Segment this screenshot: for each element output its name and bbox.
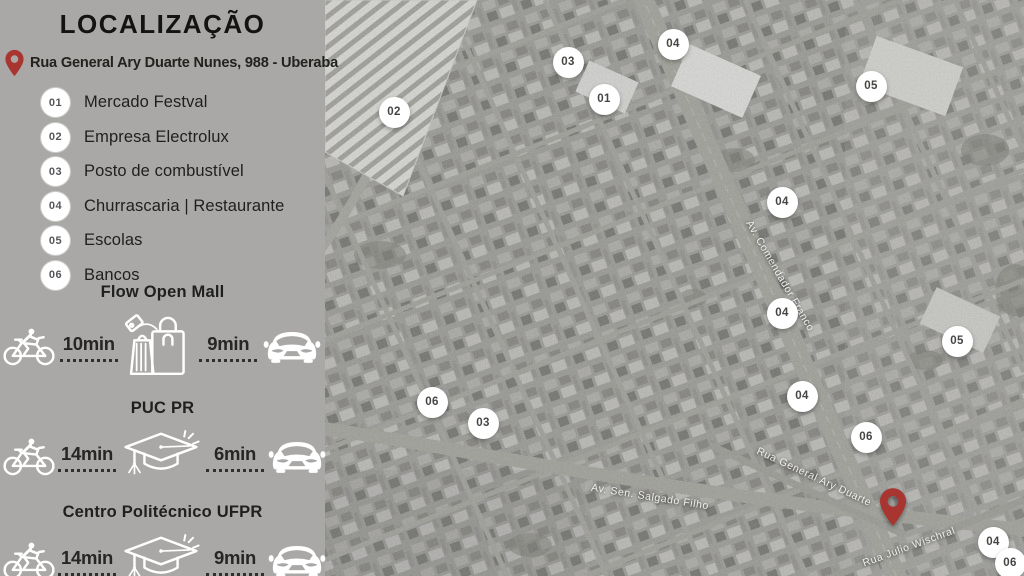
map-marker-number: 03 xyxy=(561,56,575,68)
legend-list: 01 Mercado Festval 02 Empresa Electrolux… xyxy=(41,88,325,290)
destinations-list: Flow Open Mall 10min xyxy=(0,283,325,576)
legend-item: 01 Mercado Festval xyxy=(41,88,325,117)
graduation-cap-icon xyxy=(119,429,203,485)
destination-section: Flow Open Mall 10min xyxy=(0,283,325,392)
car-time: 9min xyxy=(214,547,256,569)
map-marker[interactable]: 06 xyxy=(417,387,448,418)
map-marker[interactable]: 05 xyxy=(856,71,887,102)
legend-item: 03 Posto de combustível xyxy=(41,157,325,186)
location-pin-icon xyxy=(4,49,25,77)
sidebar: LOCALIZAÇÃO Rua General Ary Duarte Nunes… xyxy=(0,0,325,576)
car-time-block: 9min xyxy=(203,547,267,576)
bicycle-icon xyxy=(3,435,55,479)
map-marker[interactable]: 03 xyxy=(468,408,499,439)
map-marker-number: 05 xyxy=(950,335,964,347)
map-marker-number: 04 xyxy=(986,536,1000,548)
map-marker-number: 04 xyxy=(666,38,680,50)
map-marker-number: 04 xyxy=(775,307,789,319)
dotted-line xyxy=(206,469,264,472)
legend-number-badge: 01 xyxy=(41,88,70,117)
legend-number-badge: 04 xyxy=(41,192,70,221)
bicycle-icon xyxy=(3,325,55,369)
satellite-map-image xyxy=(325,0,1024,576)
bike-time: 14min xyxy=(61,547,113,569)
bike-time-block: 10min xyxy=(57,333,121,362)
destination-section: PUC PR 14min xyxy=(0,399,325,496)
map-marker-number: 04 xyxy=(775,196,789,208)
car-time-block: 9min xyxy=(196,333,260,362)
legend-label: Churrascaria | Restaurante xyxy=(84,197,284,216)
car-time-block: 6min xyxy=(203,443,267,472)
address-text: Rua General Ary Duarte Nunes, 988 - Uber… xyxy=(30,55,338,71)
dotted-line xyxy=(58,573,116,576)
map-marker[interactable]: 06 xyxy=(995,548,1024,576)
map-marker-number: 06 xyxy=(425,396,439,408)
map: 0203010405040405040606030406Av. Comendad… xyxy=(325,0,1024,576)
graduation-cap-icon xyxy=(119,533,203,576)
dotted-line xyxy=(206,573,264,576)
legend-number-badge: 05 xyxy=(41,226,70,255)
map-marker[interactable]: 04 xyxy=(787,381,818,412)
bicycle-icon xyxy=(3,539,55,576)
legend-label: Posto de combustível xyxy=(84,162,244,181)
map-marker-number: 01 xyxy=(597,93,611,105)
car-time: 9min xyxy=(207,333,249,355)
legend-label: Escolas xyxy=(84,231,142,250)
car-icon xyxy=(267,540,327,576)
legend-item: 02 Empresa Electrolux xyxy=(41,123,325,152)
map-marker[interactable]: 04 xyxy=(767,298,798,329)
map-marker[interactable]: 01 xyxy=(589,84,620,115)
map-marker[interactable]: 03 xyxy=(553,47,584,78)
legend-item: 05 Escolas xyxy=(41,226,325,255)
destination-row: 14min xyxy=(0,522,325,576)
destination-row: 10min xyxy=(0,302,325,392)
bike-time-block: 14min xyxy=(55,443,119,472)
car-icon xyxy=(267,436,327,478)
destination-name: PUC PR xyxy=(0,399,325,418)
destination-row: 14min xyxy=(0,418,325,496)
legend-label: Bancos xyxy=(84,266,140,285)
map-marker-number: 03 xyxy=(476,417,490,429)
map-marker-number: 06 xyxy=(859,431,873,443)
bike-time-block: 14min xyxy=(55,547,119,576)
legend-number-badge: 02 xyxy=(41,123,70,152)
dotted-line xyxy=(199,359,257,362)
dotted-line xyxy=(60,359,118,362)
bike-time: 10min xyxy=(63,333,115,355)
map-marker[interactable]: 05 xyxy=(942,326,973,357)
legend-item: 04 Churrascaria | Restaurante xyxy=(41,192,325,221)
destination-name: Centro Politécnico UFPR xyxy=(0,503,325,522)
map-marker-number: 06 xyxy=(1003,557,1017,569)
destination-section: Centro Politécnico UFPR 14min xyxy=(0,503,325,576)
page-title: LOCALIZAÇÃO xyxy=(0,9,325,40)
bike-time: 14min xyxy=(61,443,113,465)
map-marker[interactable]: 04 xyxy=(658,29,689,60)
car-time: 6min xyxy=(214,443,256,465)
map-marker-number: 02 xyxy=(387,106,401,118)
legend-label: Empresa Electrolux xyxy=(84,128,229,147)
legend-number-badge: 03 xyxy=(41,157,70,186)
map-marker-number: 05 xyxy=(864,80,878,92)
map-marker[interactable]: 06 xyxy=(851,422,882,453)
legend-label: Mercado Festval xyxy=(84,93,207,112)
car-icon xyxy=(262,326,322,368)
map-marker-number: 04 xyxy=(795,390,809,402)
destination-name: Flow Open Mall xyxy=(0,283,325,302)
map-marker[interactable]: 02 xyxy=(379,97,410,128)
dotted-line xyxy=(58,469,116,472)
address-row: Rua General Ary Duarte Nunes, 988 - Uber… xyxy=(4,49,323,77)
shopping-bags-icon xyxy=(123,309,195,385)
property-pin-icon[interactable] xyxy=(878,486,908,528)
map-marker[interactable]: 04 xyxy=(767,187,798,218)
